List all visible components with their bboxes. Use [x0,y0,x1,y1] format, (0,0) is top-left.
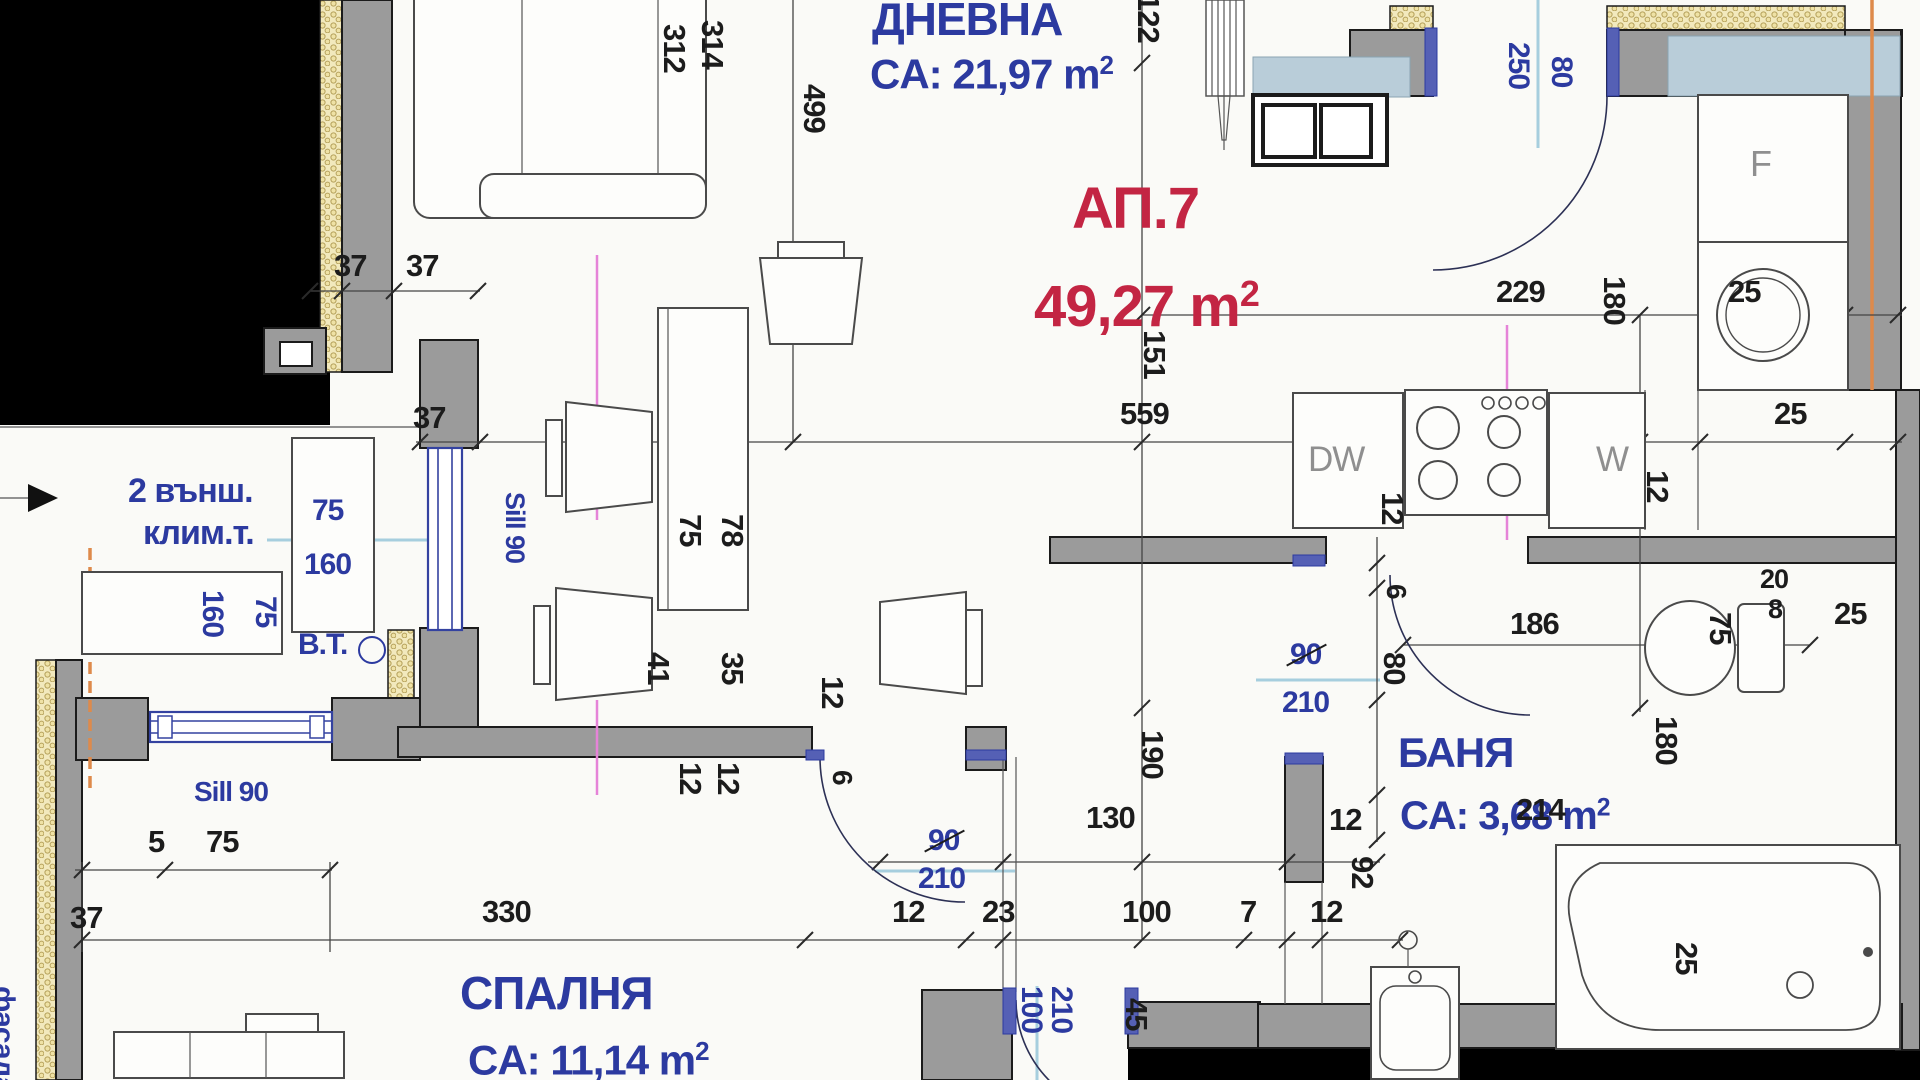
dimension-label: 12 [892,896,924,927]
apartment-number: АП.7 [1072,180,1199,238]
dimension-label: 37 [413,402,445,433]
dimension-label: 214 [1516,794,1565,825]
dimension-label: 41 [643,652,674,684]
dimension-label: 499 [799,84,830,133]
dishwasher-label: DW [1308,442,1364,477]
dimension-label: 12 [713,762,744,794]
dim-ac-width: 75 [312,496,343,526]
dimension-label: 7 [1240,896,1256,927]
dimension-label: 180 [1651,716,1682,765]
dimension-label: 75 [675,514,706,546]
dim-bath-door-w: 90 [1290,640,1321,670]
sill-90-horizontal: Sill 90 [194,778,268,806]
room-banya-area: CA: 3,68 m2 [1400,796,1611,836]
room-banya-name: БАНЯ [1398,732,1513,774]
dimension-label: 12 [1329,804,1361,835]
dimension-label: 180 [1599,276,1630,325]
plan-labels: ДНЕВНАCA: 21,97 m2АП.749,27 m2БАНЯCA: 3,… [0,0,1920,1080]
dimension-label: 186 [1510,608,1559,639]
fridge-label: F [1750,146,1771,182]
dimension-label: 12 [1642,470,1673,502]
dimension-label: 130 [1086,802,1135,833]
dimension-label: 100 [1122,896,1171,927]
dim-ac2-b: 75 [250,596,280,627]
dimension-label: 37 [70,902,102,933]
dim-bedroom-door-w: 90 [928,826,959,856]
dimension-label: 6 [1382,584,1410,599]
washer-label: W [1596,442,1628,477]
room-spalnya-name: СПАЛНЯ [460,970,653,1016]
dimension-label: 5 [148,826,164,857]
floor-plan: ДНЕВНАCA: 21,97 m2АП.749,27 m2БАНЯCA: 3,… [0,0,1920,1080]
facade-label: фасада [0,986,18,1080]
dimension-label: 25 [1671,942,1702,974]
ac-units-note-2: клим.т. [143,516,254,550]
room-spalnya-area: CA: 11,14 m2 [468,1038,710,1080]
dimension-label: 45 [1121,998,1152,1030]
dim-bath-door-h: 210 [1282,688,1329,718]
dim-entry-door-h: 210 [1046,986,1076,1033]
sill-90-vertical: Sill 90 [501,492,528,563]
dimension-label: 78 [717,514,748,546]
dim-bedroom-door-h: 210 [918,864,965,894]
dimension-label: 12 [1310,896,1342,927]
dim-ac-height: 160 [304,550,351,580]
dimension-label: 12 [1377,492,1408,524]
room-dnevna-name: ДНЕВНА [872,0,1062,42]
dimension-label: 25 [1728,276,1760,307]
dimension-label: 330 [482,896,531,927]
dimension-label: 12 [675,762,706,794]
dimension-label: 75 [206,826,238,857]
dimension-label: 20 [1760,566,1788,593]
dim-ac2-a: 160 [197,590,227,637]
bt-label: B.T. [298,630,347,660]
apartment-area: 49,27 m2 [1034,276,1260,336]
dimension-label: 35 [717,652,748,684]
dimension-label: 75 [1705,612,1736,644]
dimension-label: 8 [1768,596,1782,623]
dimension-label: 37 [334,250,366,281]
dimension-label: 23 [982,896,1014,927]
dimension-label: 314 [697,20,728,69]
dimension-label: 312 [659,24,690,73]
dimension-label: 25 [1834,598,1866,629]
dimension-label: 6 [828,770,856,785]
dimension-label: 37 [406,250,438,281]
dim-kdoor-h: 250 [1503,42,1533,89]
dimension-label: 190 [1137,730,1168,779]
dimension-label: 151 [1139,330,1170,379]
dimension-label: 122 [1133,0,1164,43]
ac-units-note-1: 2 външ. [128,474,253,508]
dimension-label: 229 [1496,276,1545,307]
dim-entry-door-w: 100 [1016,986,1046,1033]
dimension-label: 12 [817,676,848,708]
dim-kdoor-w: 80 [1546,56,1576,87]
dimension-label: 80 [1379,652,1410,684]
dimension-label: 25 [1774,398,1806,429]
room-dnevna-area: CA: 21,97 m2 [870,52,1114,95]
dimension-label: 559 [1120,398,1169,429]
dimension-label: 92 [1347,856,1378,888]
